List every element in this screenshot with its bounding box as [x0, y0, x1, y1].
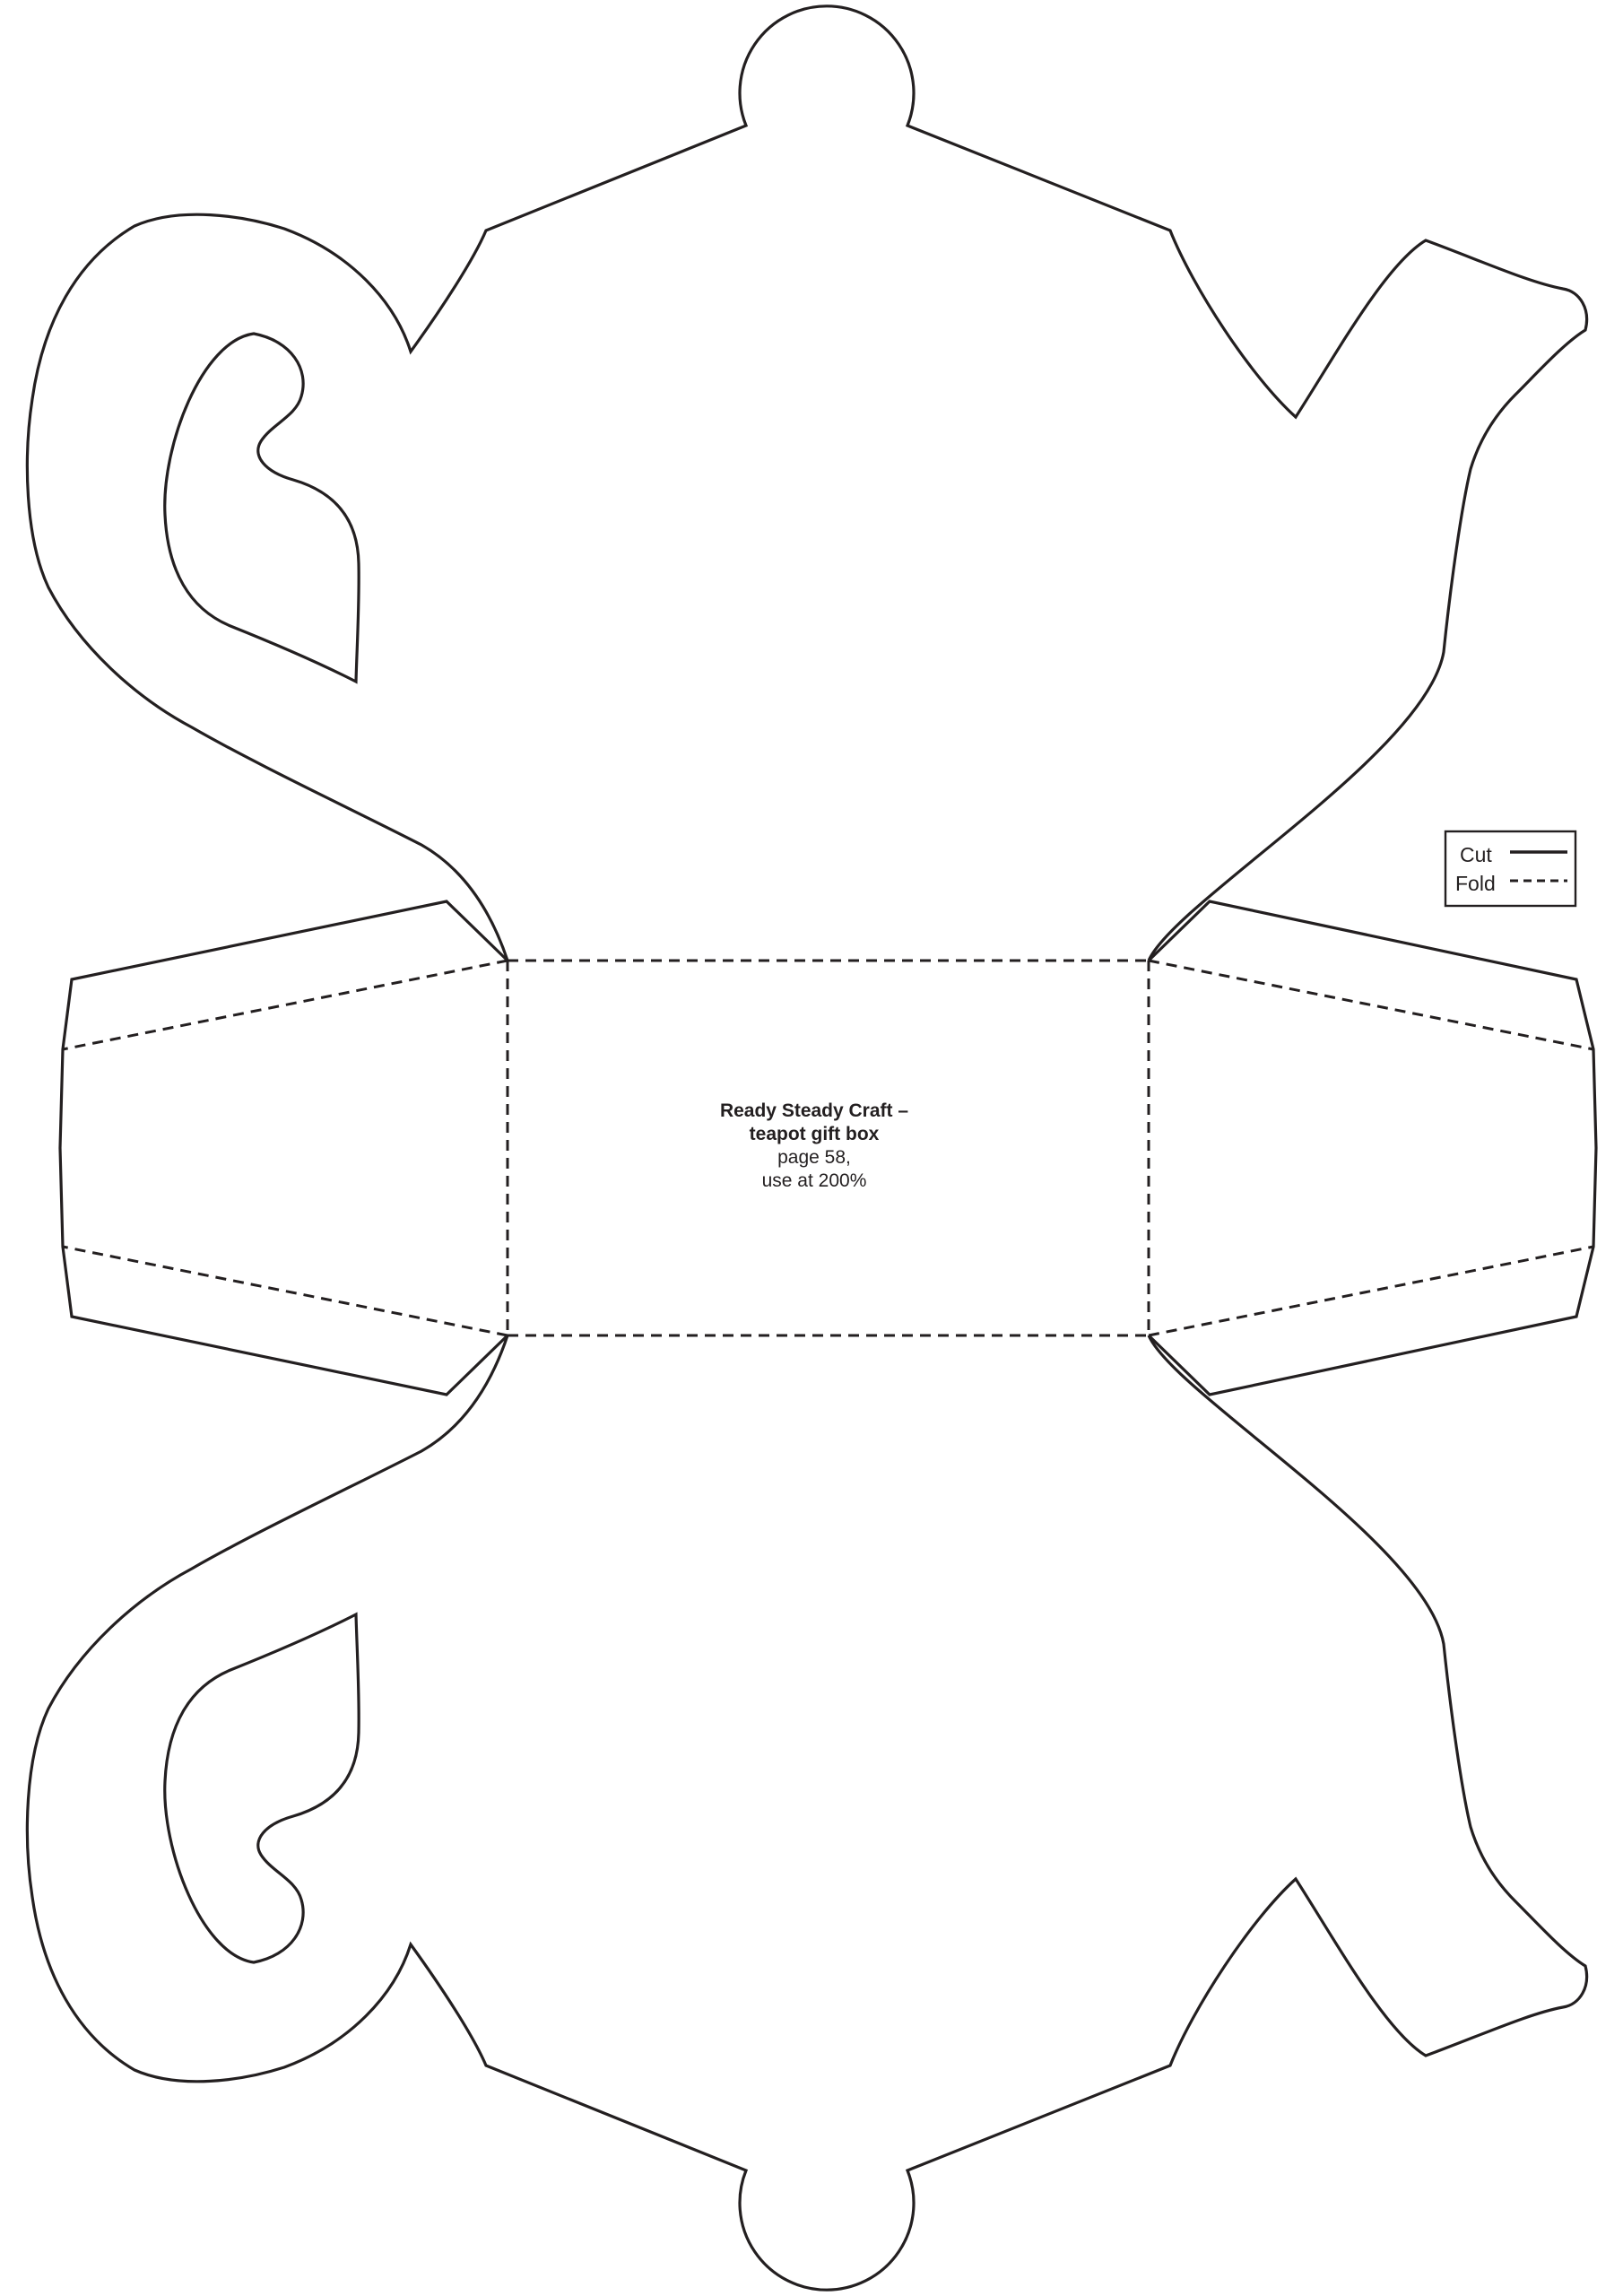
teapot-giftbox-template-diagram: Cut Fold Ready Steady Craft – teapot gif… [0, 0, 1623, 2296]
fold-line-flap-right-top [1149, 961, 1593, 1049]
caption-title-line1: Ready Steady Craft – [720, 1100, 908, 1121]
legend-cut-label: Cut [1460, 843, 1492, 866]
template-page: Cut Fold Ready Steady Craft – teapot gif… [0, 0, 1623, 2296]
legend: Cut Fold [1445, 831, 1575, 906]
fold-line-flap-right-bottom [1149, 1247, 1593, 1335]
caption-page-line: page 58, [777, 1147, 851, 1168]
teapot-bottom [27, 1335, 1586, 2290]
side-flap-right [1149, 901, 1596, 1395]
fold-line-flap-left-top [63, 961, 508, 1049]
side-flap-left [60, 901, 508, 1395]
teapot-top [27, 6, 1586, 961]
caption: Ready Steady Craft – teapot gift box pag… [720, 1100, 908, 1191]
fold-line-flap-left-bottom [63, 1247, 508, 1335]
legend-fold-label: Fold [1455, 872, 1496, 895]
caption-scale-line: use at 200% [762, 1170, 867, 1191]
caption-title-line2: teapot gift box [750, 1124, 880, 1144]
